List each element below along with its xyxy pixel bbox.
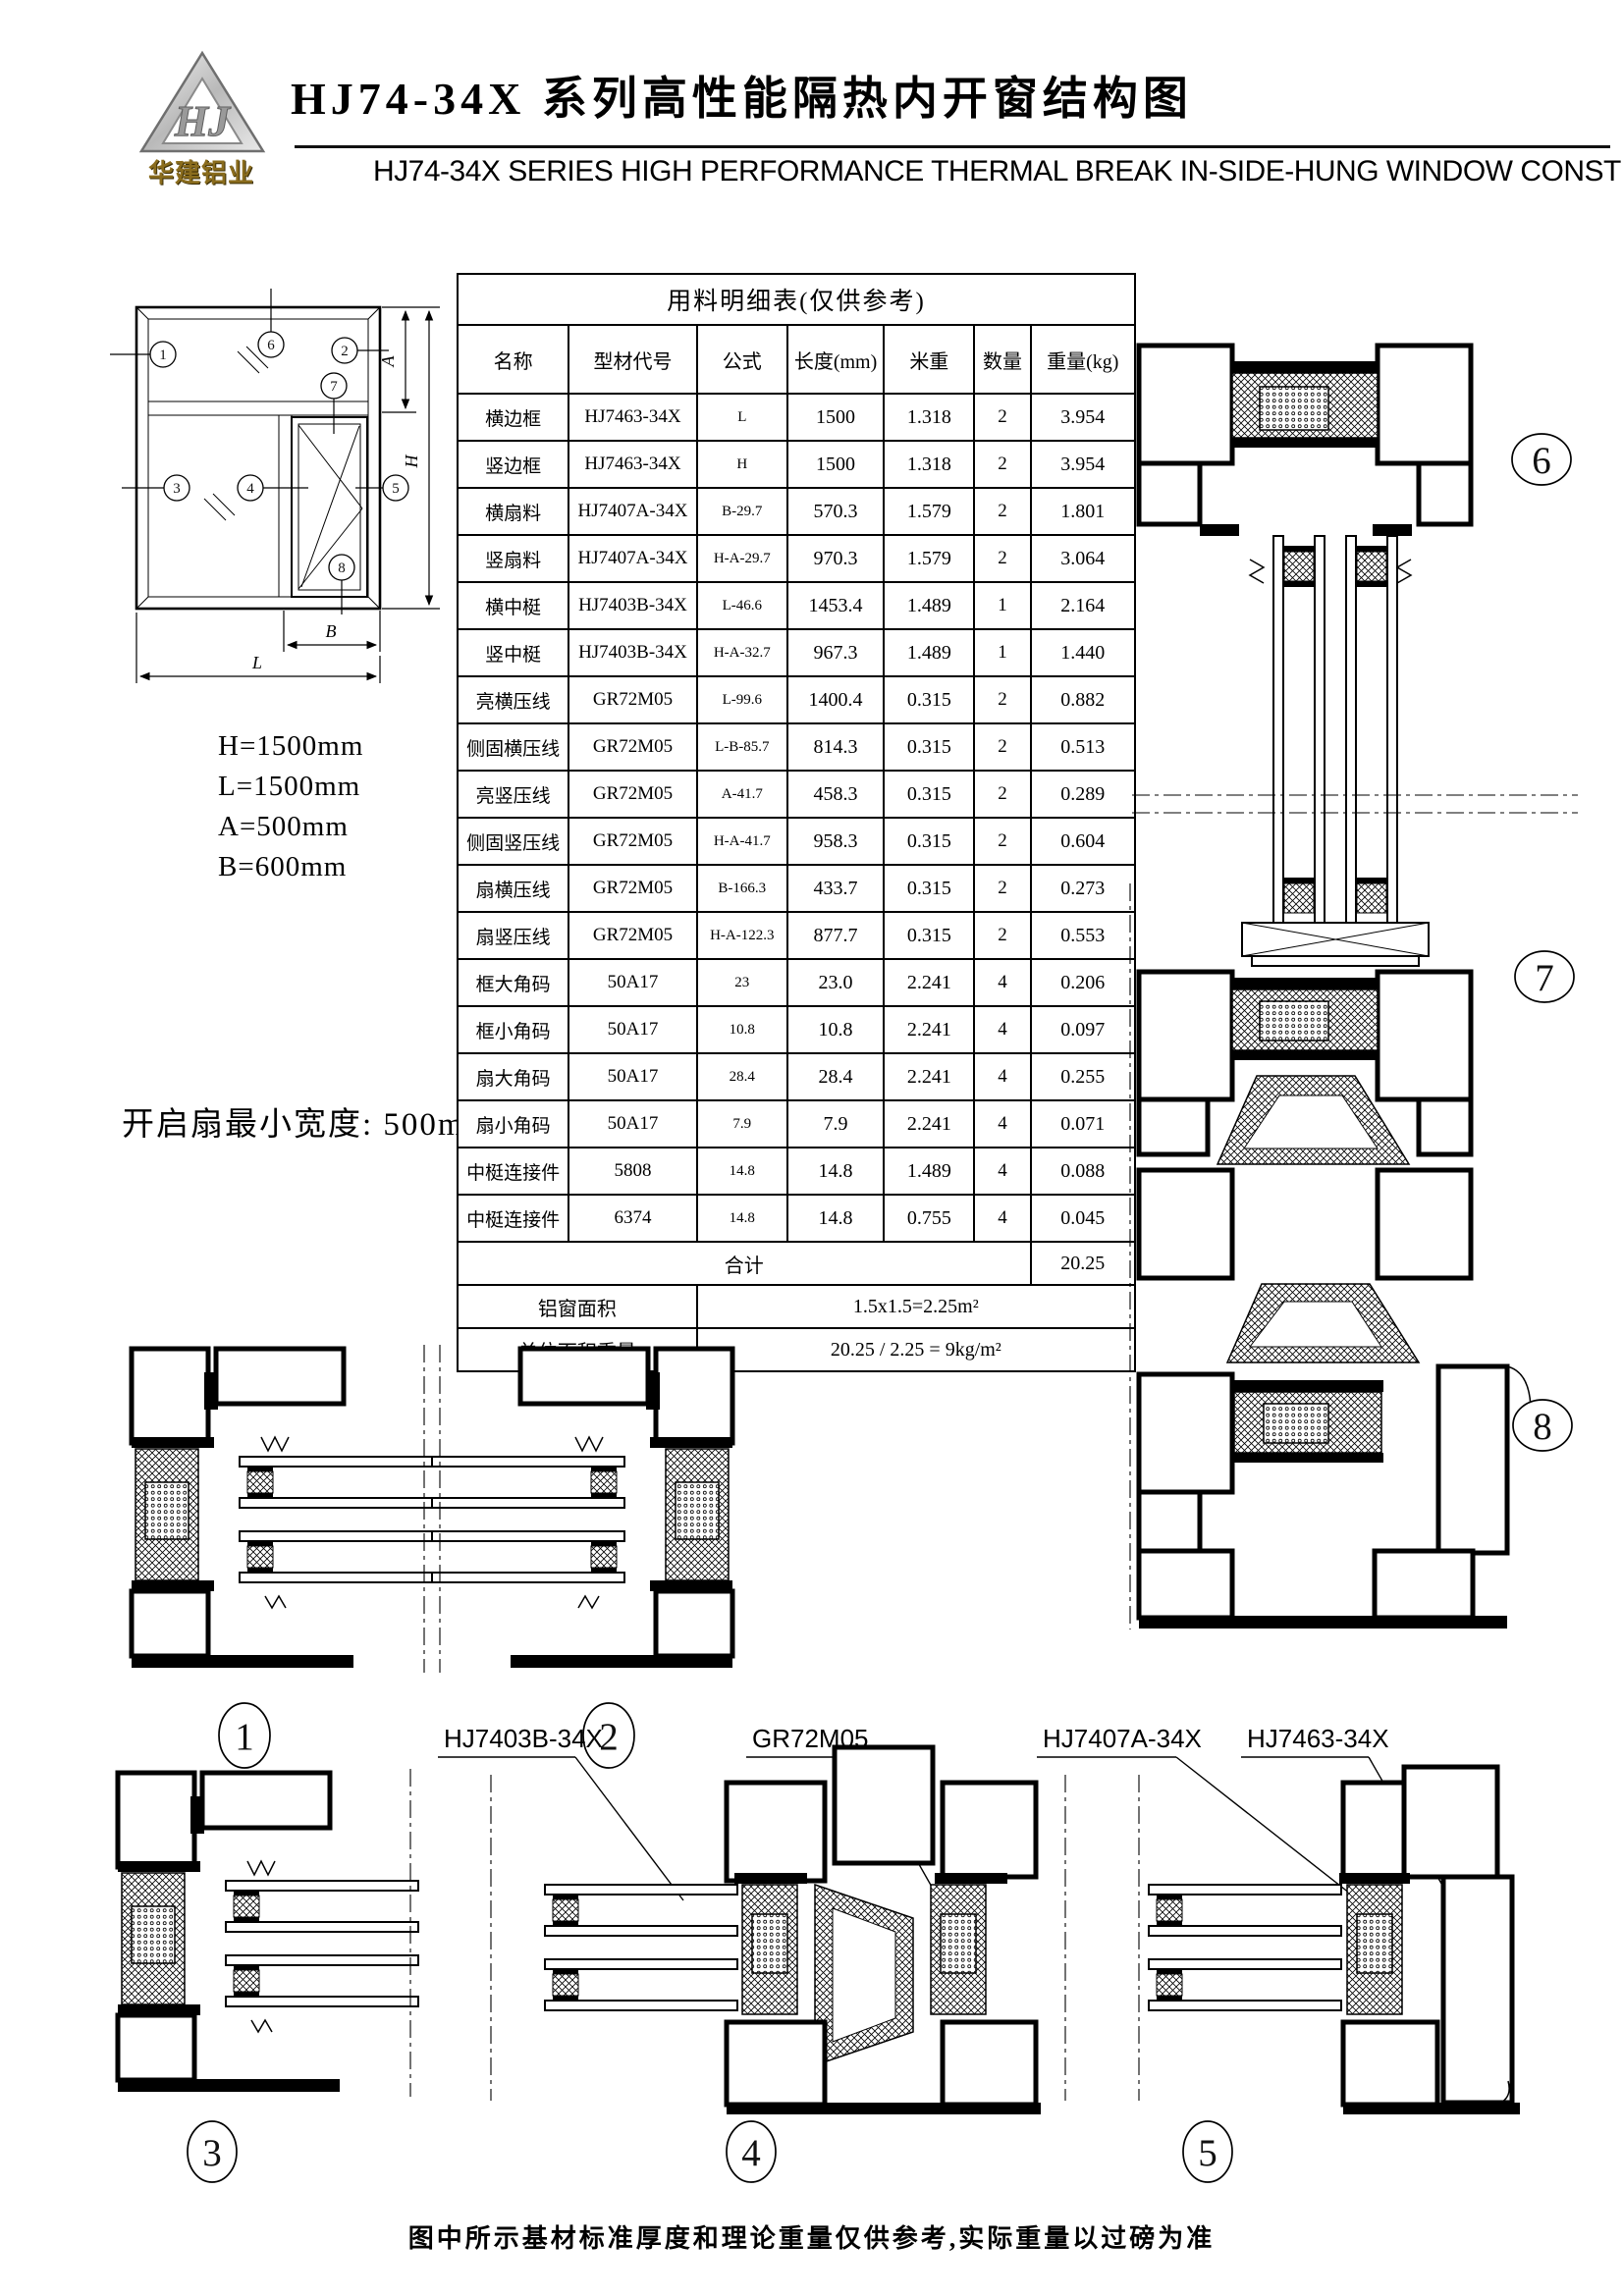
table-title: 用料明细表(仅供参考) [458,274,1135,325]
table-cell: 5808 [568,1148,696,1195]
table-cell: 亮竖压线 [458,771,568,818]
table-cell: GR72M05 [568,771,696,818]
table-row: 扇横压线GR72M05B-166.3433.70.31520.273 [458,865,1135,912]
table-cell: 0.088 [1031,1148,1135,1195]
table-cell: 1.318 [884,441,974,488]
table-cell: GR72M05 [568,865,696,912]
table-cell: 0.882 [1031,676,1135,723]
section-7-profile [1139,972,1471,1278]
table-row: 中梃连接件580814.814.81.48940.088 [458,1148,1135,1195]
callout-section-4: 4 [727,2121,776,2182]
svg-text:7: 7 [330,379,338,395]
table-cell: 扇横压线 [458,865,568,912]
materials-table: 用料明细表(仅供参考) 名称 型材代号 公式 长度(mm) 米重 数量 重量(k… [457,273,1136,1372]
table-cell: 970.3 [787,535,884,582]
dimension-A: A [378,307,440,412]
table-cell: 0.315 [884,723,974,771]
table-cell: 4 [974,1195,1030,1242]
table-cell: 0.315 [884,912,974,959]
table-cell: 横中梃 [458,582,568,629]
table-cell: 0.255 [1031,1053,1135,1100]
table-cell: 1.318 [884,394,974,441]
company-logo-icon: HJ [126,49,273,157]
window-elevation-schematic: 1 6 2 7 3 4 5 [108,275,471,726]
table-cell: 中梃连接件 [458,1148,568,1195]
unit-weight-value: 20.25 / 2.25 = 9kg/m² [697,1328,1135,1371]
table-cell: HJ7403B-34X [568,582,696,629]
table-cell: 0.315 [884,771,974,818]
table-cell: 2.164 [1031,582,1135,629]
table-cell: 50A17 [568,1100,696,1148]
profile-label-hj7403b: HJ7403B-34X [438,1724,683,1900]
table-cell: 2 [974,723,1030,771]
horizontal-mullion [148,401,368,415]
section-6-profile [1139,346,1471,536]
table-cell: 7.9 [697,1100,787,1148]
svg-text:1: 1 [159,347,167,363]
table-cell: 3.954 [1031,394,1135,441]
cross-section-drawing-6-7-8: 6 7 8 [1124,334,1586,1659]
table-cell: 2 [974,441,1030,488]
footer-disclaimer: 图中所示基材标准厚度和理论重量仅供参考,实际重量以过磅为准 [0,2218,1623,2255]
table-cell: HJ7403B-34X [568,629,696,676]
svg-text:H: H [402,454,421,469]
table-row: 扇竖压线GR72M05H-A-122.3877.70.31520.553 [458,912,1135,959]
table-cell: 1.489 [884,1148,974,1195]
table-cell: 2 [974,488,1030,535]
table-cell: 958.3 [787,818,884,865]
table-cell: 7.9 [787,1100,884,1148]
svg-text:B: B [326,621,337,641]
table-cell: HJ7407A-34X [568,488,696,535]
table-cell: 14.8 [697,1148,787,1195]
sheet-title: HJ74-34X 系列高性能隔热内开窗结构图 [291,63,1596,128]
table-cell: GR72M05 [568,818,696,865]
table-row: 中梃连接件637414.814.80.75540.045 [458,1195,1135,1242]
callout-1: 1 [110,342,176,367]
table-cell: 2 [974,912,1030,959]
callout-8: 8 [329,555,354,614]
svg-text:HJ7407A-34X: HJ7407A-34X [1043,1724,1202,1753]
logo-brand-text: 华建铝业 [128,153,275,189]
table-cell: HJ7407A-34X [568,535,696,582]
table-cell: 2 [974,818,1030,865]
materials-tbody: 横边框HJ7463-34XL15001.31823.954竖边框HJ7463-3… [458,394,1135,1242]
table-cell: 10.8 [697,1006,787,1053]
cross-section-drawing-3-4-5: HJ7403B-34X GR72M05 HJ7407A-34X HJ7463-3… [98,1708,1532,2199]
table-cell: 1.489 [884,629,974,676]
table-cell: 1.579 [884,535,974,582]
table-cell: 0.553 [1031,912,1135,959]
callout-section-3: 3 [188,2121,237,2182]
table-cell: L [697,394,787,441]
callout-6: 6 [258,289,284,357]
table-cell: 横扇料 [458,488,568,535]
min-sash-width-note: 开启扇最小宽度: 500mm [122,1097,492,1145]
table-cell: 2.241 [884,959,974,1006]
table-cell: GR72M05 [568,676,696,723]
table-cell: 1.489 [884,582,974,629]
table-cell: H-A-32.7 [697,629,787,676]
table-row: 侧固竖压线GR72M05H-A-41.7958.30.31520.604 [458,818,1135,865]
table-cell: 侧固横压线 [458,723,568,771]
svg-text:3: 3 [173,481,181,497]
total-value: 20.25 [1031,1242,1135,1285]
dimension-L: L [136,613,380,683]
table-row: 竖扇料HJ7407A-34XH-A-29.7970.31.57923.064 [458,535,1135,582]
table-cell: 侧固竖压线 [458,818,568,865]
svg-text:5: 5 [1198,2132,1217,2174]
table-cell: 0.206 [1031,959,1135,1006]
callout-section-8: 8 [1513,1400,1572,1451]
svg-text:6: 6 [267,338,275,353]
area-row: 铝窗面积 1.5x1.5=2.25m² [458,1285,1135,1328]
table-cell: GR72M05 [568,723,696,771]
dim-B: B=600mm [218,847,363,887]
table-cell: 14.8 [787,1148,884,1195]
section-3-profile [118,1769,418,2097]
table-cell: 0.315 [884,818,974,865]
callout-3: 3 [122,475,189,501]
table-cell: 6374 [568,1195,696,1242]
table-cell: 1400.4 [787,676,884,723]
table-cell: H-A-122.3 [697,912,787,959]
svg-text:8: 8 [338,561,346,576]
table-cell: 2 [974,865,1030,912]
table-cell: 433.7 [787,865,884,912]
col-header: 长度(mm) [787,325,884,394]
table-cell: 竖中梃 [458,629,568,676]
table-row: 扇小角码50A177.97.92.24140.071 [458,1100,1135,1148]
dimension-H: H [382,311,440,609]
glazing-unit-vertical [1250,536,1411,923]
table-header-row: 名称 型材代号 公式 长度(mm) 米重 数量 重量(kg) [458,325,1135,394]
table-cell: 2 [974,394,1030,441]
table-cell: 0.315 [884,865,974,912]
dimension-B: B [284,611,380,652]
table-cell: 4 [974,1148,1030,1195]
table-cell: 2 [974,676,1030,723]
table-cell: 4 [974,1100,1030,1148]
section-4-profile [545,1747,1041,2114]
table-cell: 框大角码 [458,959,568,1006]
table-cell: H [697,441,787,488]
table-cell: 竖边框 [458,441,568,488]
table-cell: 0.045 [1031,1195,1135,1242]
table-cell: L-99.6 [697,676,787,723]
table-cell: 0.273 [1031,865,1135,912]
svg-text:HJ7403B-34X: HJ7403B-34X [444,1724,603,1753]
table-cell: 0.289 [1031,771,1135,818]
table-cell: 4 [974,1053,1030,1100]
table-cell: HJ7463-34X [568,441,696,488]
svg-text:5: 5 [392,481,400,497]
table-row: 横中梃HJ7403B-34XL-46.61453.41.48912.164 [458,582,1135,629]
setting-block [1242,923,1429,966]
area-label: 铝窗面积 [458,1285,697,1328]
table-cell: 967.3 [787,629,884,676]
table-row: 框大角码50A172323.02.24140.206 [458,959,1135,1006]
table-cell: 877.7 [787,912,884,959]
table-cell: 1500 [787,441,884,488]
table-cell: 50A17 [568,1053,696,1100]
table-cell: 10.8 [787,1006,884,1053]
area-value: 1.5x1.5=2.25m² [697,1285,1135,1328]
sheet-subtitle: HJ74-34X SERIES HIGH PERFORMANCE THERMAL… [373,155,1620,188]
table-cell: 3.064 [1031,535,1135,582]
table-cell: 50A17 [568,1006,696,1053]
dim-H: H=1500mm [218,726,363,767]
table-cell: 23.0 [787,959,884,1006]
col-header: 名称 [458,325,568,394]
svg-text:3: 3 [202,2132,222,2174]
table-row: 竖边框HJ7463-34XH15001.31823.954 [458,441,1135,488]
table-cell: 4 [974,959,1030,1006]
table-row: 竖中梃HJ7403B-34XH-A-32.7967.31.48911.440 [458,629,1135,676]
table-cell: 4 [974,1006,1030,1053]
table-cell: 0.755 [884,1195,974,1242]
table-cell: L-B-85.7 [697,723,787,771]
callout-section-7: 7 [1515,951,1574,1002]
table-cell: 框小角码 [458,1006,568,1053]
table-cell: 23 [697,959,787,1006]
col-header: 米重 [884,325,974,394]
table-cell: 1453.4 [787,582,884,629]
table-row: 亮横压线GR72M05L-99.61400.40.31520.882 [458,676,1135,723]
svg-text:6: 6 [1532,440,1551,482]
table-cell: 扇竖压线 [458,912,568,959]
table-cell: 0.604 [1031,818,1135,865]
table-cell: 2.241 [884,1053,974,1100]
dim-A: A=500mm [218,807,363,847]
table-cell: 2.241 [884,1100,974,1148]
drawing-sheet: HJ 华建铝业 HJ74-34X 系列高性能隔热内开窗结构图 HJ74-34X … [0,0,1623,2296]
col-header: 型材代号 [568,325,696,394]
svg-text:A: A [378,355,398,368]
table-cell: 0.097 [1031,1006,1135,1053]
table-cell: A-41.7 [697,771,787,818]
table-cell: 中梃连接件 [458,1195,568,1242]
callout-7: 7 [321,373,347,434]
svg-text:8: 8 [1533,1406,1552,1448]
table-cell: 2.241 [884,1006,974,1053]
table-cell: 814.3 [787,723,884,771]
dimension-values: H=1500mm L=1500mm A=500mm B=600mm [218,726,363,887]
svg-text:L: L [251,653,262,672]
svg-text:2: 2 [341,344,349,359]
table-cell: 14.8 [787,1195,884,1242]
table-cell: 1500 [787,394,884,441]
dim-L: L=1500mm [218,767,363,807]
table-row: 横边框HJ7463-34XL15001.31823.954 [458,394,1135,441]
callout-section-6: 6 [1512,434,1571,485]
table-cell: 570.3 [787,488,884,535]
svg-text:4: 4 [246,481,254,497]
table-cell: 28.4 [697,1053,787,1100]
total-label: 合计 [458,1242,1031,1285]
table-row: 横扇料HJ7407A-34XB-29.7570.31.57921.801 [458,488,1135,535]
table-cell: 28.4 [787,1053,884,1100]
table-cell: 0.315 [884,676,974,723]
table-cell: 2 [974,535,1030,582]
table-cell: B-166.3 [697,865,787,912]
table-cell: H-A-29.7 [697,535,787,582]
table-cell: 竖扇料 [458,535,568,582]
table-row: 侧固横压线GR72M05L-B-85.7814.30.31520.513 [458,723,1135,771]
table-cell: 14.8 [697,1195,787,1242]
svg-text:HJ7463-34X: HJ7463-34X [1247,1724,1389,1753]
table-cell: 1 [974,582,1030,629]
section-5-profile [1149,1767,1520,2114]
table-cell: 2 [974,771,1030,818]
table-cell: 扇小角码 [458,1100,568,1148]
callout-5: 5 [355,475,408,501]
table-cell: 0.071 [1031,1100,1135,1148]
col-header: 公式 [697,325,787,394]
svg-text:7: 7 [1535,957,1554,999]
table-cell: 1.579 [884,488,974,535]
table-row: 亮竖压线GR72M05A-41.7458.30.31520.289 [458,771,1135,818]
table-row: 扇大角码50A1728.428.42.24140.255 [458,1053,1135,1100]
table-cell: B-29.7 [697,488,787,535]
svg-text:4: 4 [741,2132,761,2174]
table-cell: 横边框 [458,394,568,441]
vertical-mullion [279,415,292,597]
col-header: 重量(kg) [1031,325,1135,394]
table-row: 框小角码50A1710.810.82.24140.097 [458,1006,1135,1053]
section-8-profile [1139,1284,1531,1629]
table-cell: GR72M05 [568,912,696,959]
table-cell: 1 [974,629,1030,676]
table-cell: H-A-41.7 [697,818,787,865]
table-cell: 50A17 [568,959,696,1006]
total-row: 合计 20.25 [458,1242,1135,1285]
table-cell: 1.801 [1031,488,1135,535]
table-cell: 亮横压线 [458,676,568,723]
table-cell: 458.3 [787,771,884,818]
table-cell: HJ7463-34X [568,394,696,441]
title-divider [295,145,1610,148]
logo-monogram: HJ [174,97,232,145]
table-cell: L-46.6 [697,582,787,629]
callout-section-5: 5 [1183,2121,1232,2182]
table-cell: 3.954 [1031,441,1135,488]
callout-4: 4 [238,475,308,501]
table-cell: 0.513 [1031,723,1135,771]
col-header: 数量 [974,325,1030,394]
table-cell: 1.440 [1031,629,1135,676]
table-cell: 扇大角码 [458,1053,568,1100]
